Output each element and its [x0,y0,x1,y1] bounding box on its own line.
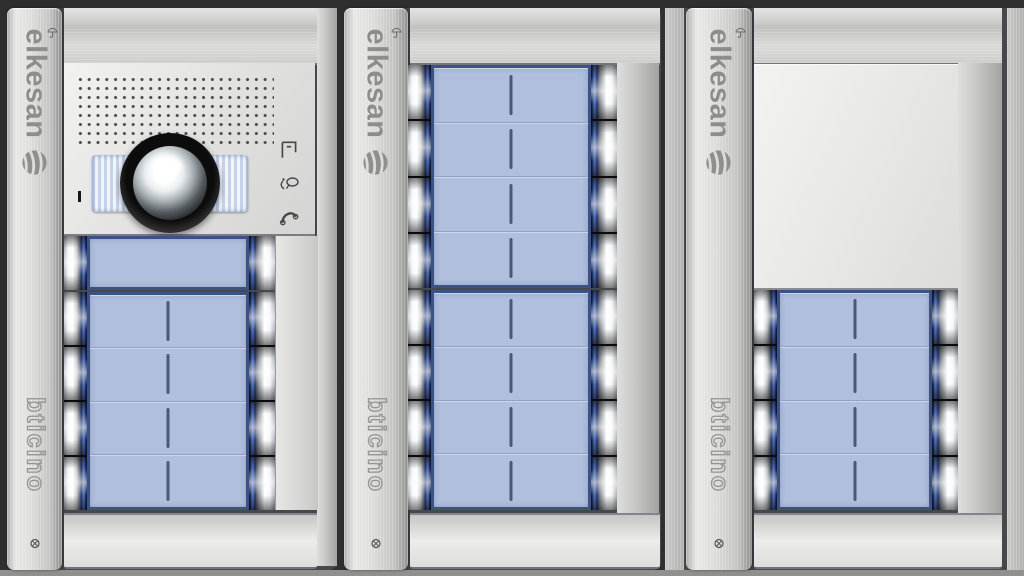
door-release-icon [278,139,300,161]
lens-glare [151,156,182,176]
camera-lens [120,133,220,233]
call-button [64,457,87,510]
card-divider [510,461,513,501]
name-card-row [434,454,588,507]
top-blank-module [410,25,660,65]
card-divider [167,461,170,501]
card-divider [167,408,170,448]
swirl-logo [20,147,50,177]
swirl-logo [361,147,391,177]
frame-right-rail [317,8,337,566]
card-divider [853,299,856,339]
button-strip-right [249,292,275,510]
call-button [932,346,958,402]
call-button [408,457,431,511]
call-button [408,234,431,288]
call-button [408,401,431,457]
bticino-wordmark: bticino [362,397,391,493]
name-card-row [434,293,588,347]
screw-icon [714,538,725,549]
plinth-module [64,513,317,569]
handset-icon [278,207,300,229]
card-divider [853,461,856,501]
call-button [408,346,431,402]
button-strip-right [249,236,275,290]
alignment-mark [78,191,81,202]
call-button [249,457,275,510]
card-divider [853,353,856,393]
name-card-row [90,402,246,455]
call-button [591,457,617,511]
call-button [64,236,87,290]
blank-cover-module [754,64,958,290]
plinth-module [410,513,660,569]
call-button [754,290,777,346]
call-button [754,457,777,511]
frame-outer-strip-right [1007,8,1024,570]
button-strip-left [754,290,777,510]
call-button [754,401,777,457]
card-divider [510,238,513,278]
branding-rail: elkesan bticino [686,8,752,570]
name-card-panel [87,292,249,510]
screw-icon [371,538,382,549]
screw-icon [29,538,40,549]
button-module-4x2 [408,290,617,510]
call-button [249,236,275,290]
name-card-row [434,123,588,178]
call-button [408,65,431,121]
button-module-4x2 [754,290,958,510]
button-module-4x2 [408,65,617,288]
name-card-row [780,454,929,507]
call-button [249,402,275,457]
umbrella-icon [391,26,402,39]
button-strip-left [64,292,87,510]
call-button [932,401,958,457]
button-module-4x2 [64,292,275,510]
bticino-wordmark: bticino [20,397,49,493]
frame-filler [275,236,318,510]
camera-speaker-module [64,63,315,236]
name-card-panel [431,290,591,510]
name-card-row [434,68,588,123]
call-button [249,347,275,402]
bticino-wordmark: bticino [705,397,734,493]
call-button [408,121,431,177]
card-divider [510,353,513,393]
name-card-panel [87,236,249,290]
frame-right-rail [617,63,659,566]
call-button [591,401,617,457]
card-divider [510,129,513,169]
button-strip-left [408,290,431,510]
frame-right-rail [958,63,1002,566]
name-card-row [434,347,588,401]
button-strip-right [932,290,958,510]
swirl-logo [704,147,734,177]
call-button [591,290,617,346]
name-card-row [434,232,588,286]
name-card-row [434,177,588,232]
brand-lockup: elkesan [18,29,51,178]
name-card-row [90,295,246,348]
camera-lens-glass [133,146,207,220]
card-divider [167,301,170,341]
call-button [754,346,777,402]
call-button [591,178,617,234]
call-button [591,65,617,121]
name-card-row [90,348,246,401]
branding-rail: elkesan bticino [344,8,408,570]
top-blank-module [64,25,317,65]
scene: elkesan bticino [0,0,1024,576]
frame-outer-strip-left [665,8,684,570]
frame-top-trim [754,8,1002,26]
call-button [932,457,958,511]
entrance-panel-3: elkesan bticino [665,8,1024,570]
name-card-row [90,455,246,507]
button-strip-right [591,65,617,288]
call-button [591,121,617,177]
name-card-row [780,401,929,455]
floor-shadow [0,570,1024,576]
brand-wordmark: elkesan [360,29,393,139]
card-divider [853,407,856,447]
card-divider [510,299,513,339]
name-card-row [434,401,588,455]
frame-top-trim [64,8,317,26]
call-button [591,234,617,288]
card-divider [510,75,513,115]
brand-lockup: elkesan [703,29,736,178]
name-card-panel [777,290,932,510]
entrance-panel-2: elkesan bticino [344,8,661,570]
call-button [64,347,87,402]
branding-rail: elkesan bticino [7,8,62,570]
button-strip-left [64,236,87,290]
plinth-module [754,513,1002,569]
card-divider [510,407,513,447]
call-button [64,402,87,457]
name-card-row [780,293,929,347]
call-button [249,292,275,347]
name-card-panel [431,65,591,288]
brand-wordmark: elkesan [18,29,51,139]
entrance-panel-1: elkesan bticino [7,8,337,570]
single-row-button-module [64,236,275,290]
brand-wordmark: elkesan [703,29,736,139]
brand-lockup: elkesan [360,29,393,178]
card-divider [510,184,513,224]
card-divider [167,354,170,394]
speak-icon [278,173,300,195]
call-button [591,346,617,402]
button-strip-right [591,290,617,510]
name-card-row [780,347,929,401]
call-button [64,292,87,347]
button-strip-left [408,65,431,288]
umbrella-icon [735,26,746,39]
call-button [408,178,431,234]
top-blank-module [754,25,1002,65]
call-button [408,290,431,346]
frame-top-trim [410,8,660,26]
call-button [932,290,958,346]
